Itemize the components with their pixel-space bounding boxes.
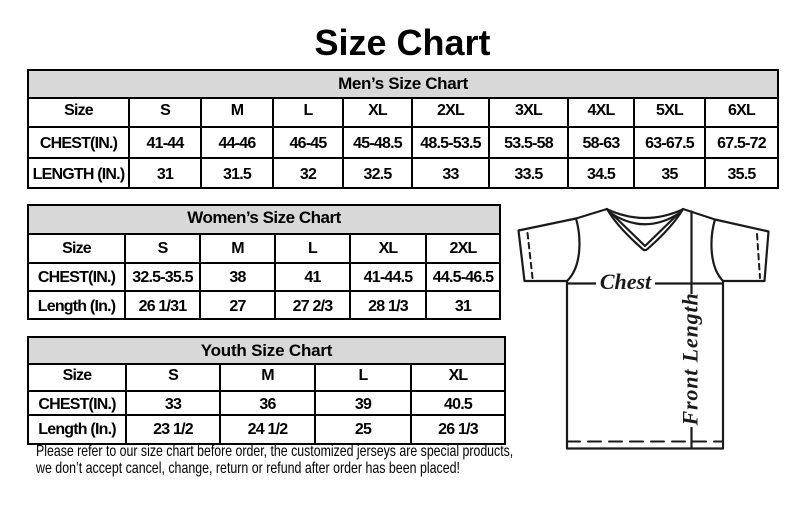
svg-text:Chest: Chest [600, 269, 652, 294]
svg-text:Front Length: Front Length [678, 292, 703, 426]
